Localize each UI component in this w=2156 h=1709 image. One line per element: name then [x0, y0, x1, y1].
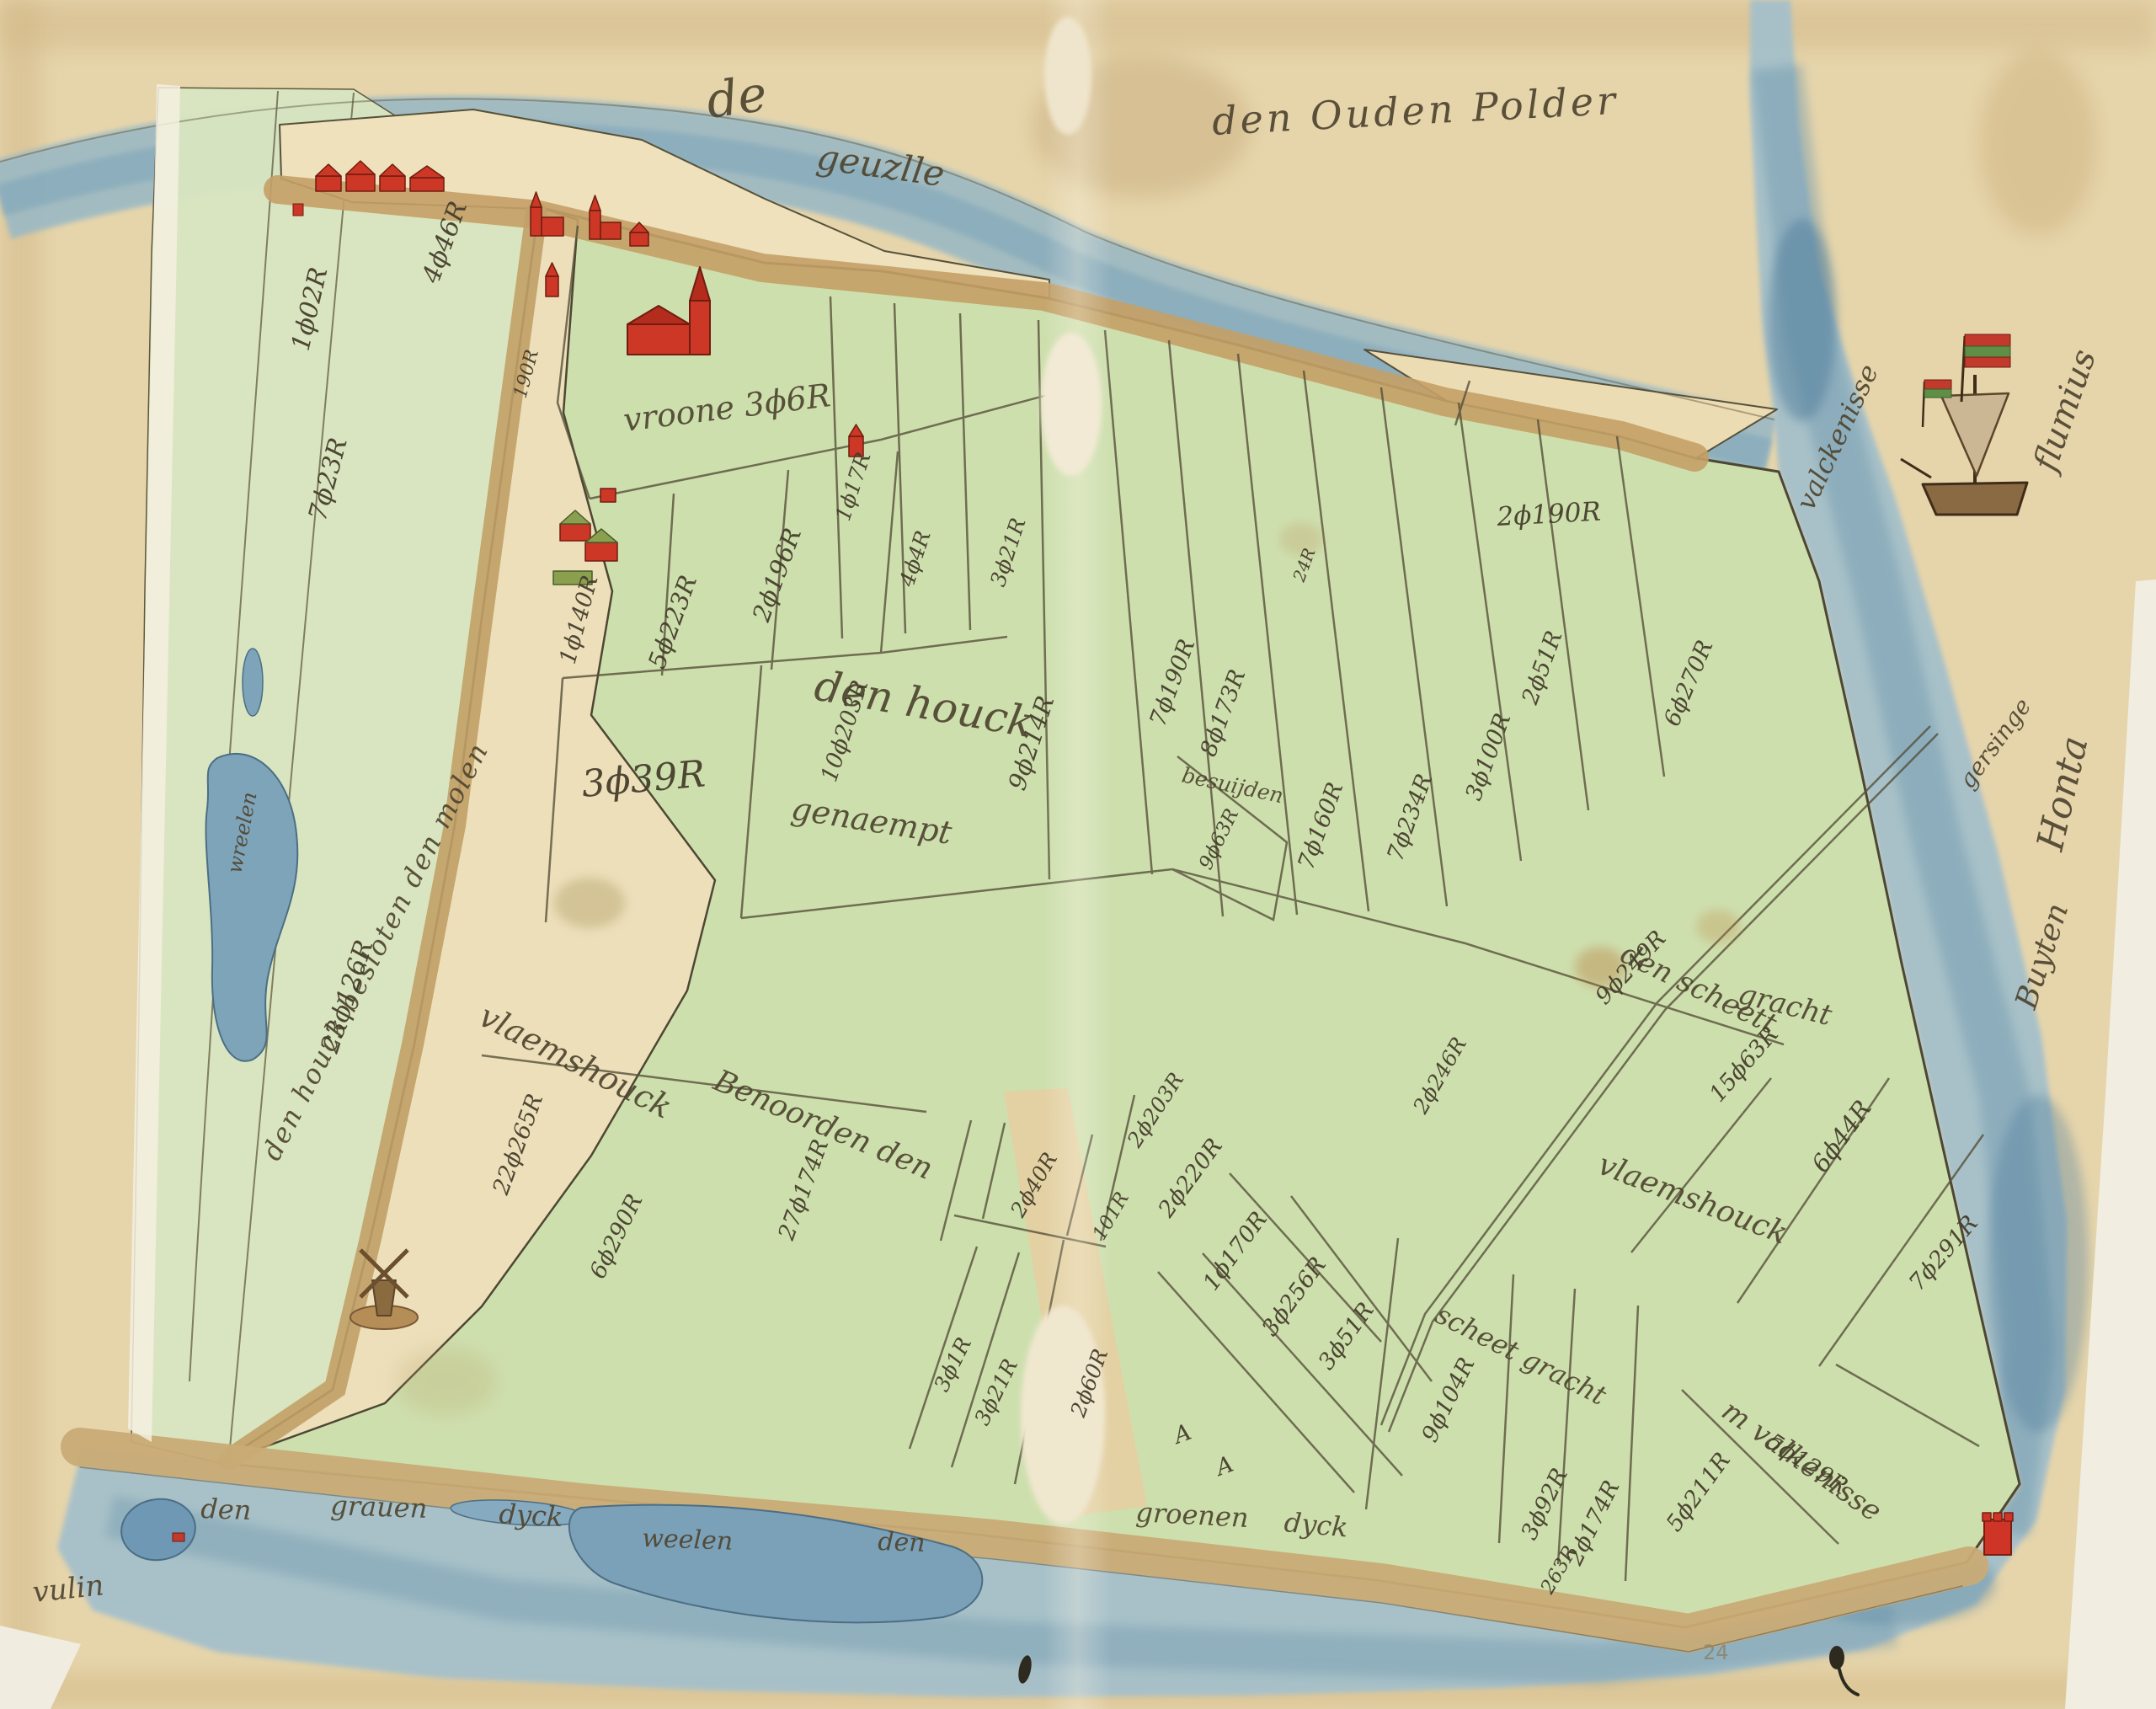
place-den-groenen-dyck-1: den — [878, 1527, 926, 1558]
red-mark-icon — [173, 1533, 184, 1541]
stain — [554, 878, 625, 928]
page-number: 24 — [1703, 1641, 1729, 1664]
fold-worn-patch — [1021, 1306, 1105, 1525]
place-den-grauen-dyck-2: grauen — [330, 1489, 428, 1525]
place-de: de — [702, 65, 770, 130]
paper-edge-left — [0, 0, 42, 1709]
flag-icon — [1965, 334, 2010, 367]
place-den-grauen-dyck-3: dyck — [499, 1498, 564, 1533]
fold-worn-patch — [1041, 333, 1102, 476]
historical-polder-map: den Ouden Polder — [0, 0, 2156, 1709]
parcel-label: 2ϕ190R — [1496, 497, 1602, 532]
fold-worn-patch — [1044, 17, 1091, 135]
water-dark-patch — [1988, 1095, 2089, 1432]
map-canvas: den Ouden Polder — [0, 0, 2156, 1709]
stain — [396, 1348, 497, 1415]
small-creek-pond — [243, 649, 263, 716]
small-house-icon — [293, 204, 303, 216]
stain — [1979, 51, 2097, 236]
place-den-groenen-dyck-3: dyck — [1283, 1506, 1349, 1543]
place-den-grauen-dyck-1: den — [200, 1493, 252, 1526]
water-dark-patch — [1769, 219, 1836, 421]
stain — [1696, 910, 1740, 943]
beacon-tower-icon — [1983, 1513, 2013, 1555]
flag-icon — [1924, 380, 1951, 398]
place-weelen: weelen — [642, 1524, 734, 1557]
place-den-groenen-dyck-2: groenen — [1135, 1496, 1250, 1534]
